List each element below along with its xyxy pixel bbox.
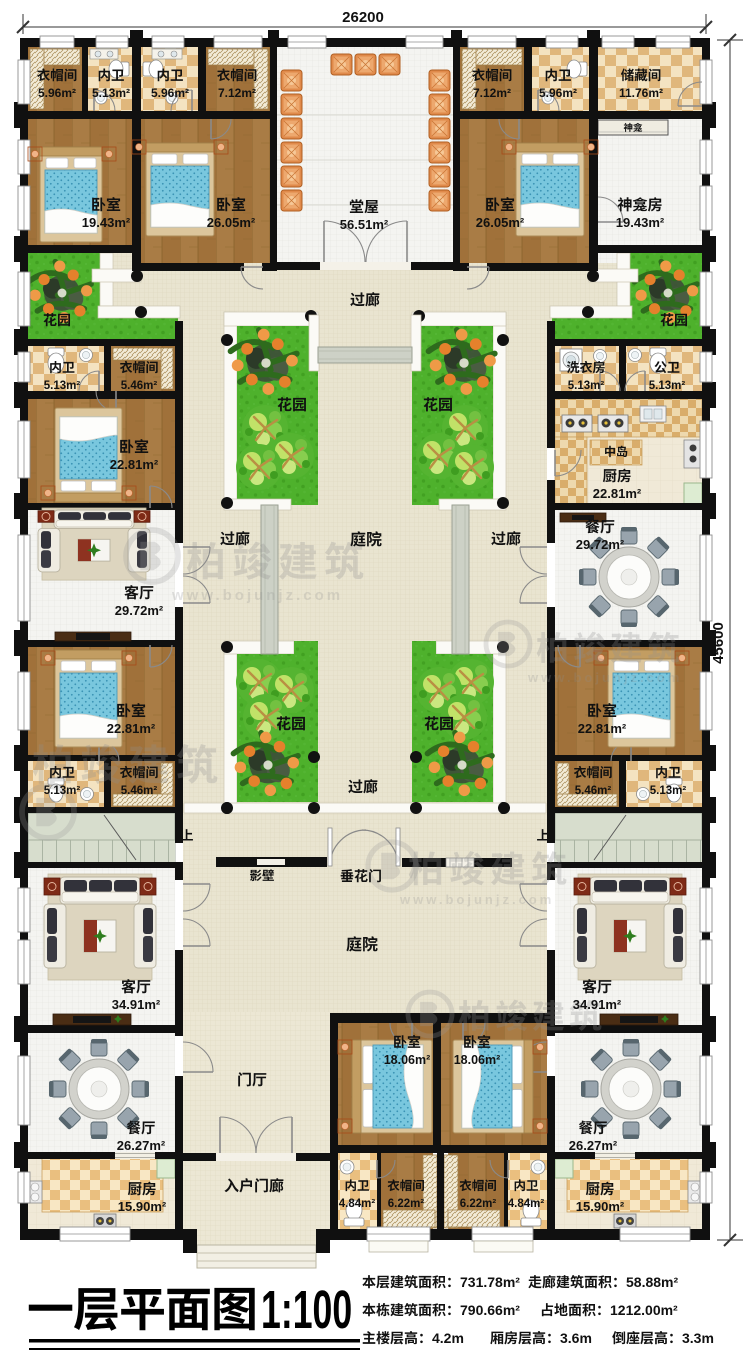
svg-text:主楼层高：4.2m: 主楼层高：4.2m <box>362 1328 464 1348</box>
svg-text:客厅: 客厅 <box>124 582 154 603</box>
svg-text:厨房: 厨房 <box>128 1178 157 1199</box>
svg-text:一层平面图: 一层平面图 <box>27 1271 257 1340</box>
svg-text:5.13m²: 5.13m² <box>650 785 687 797</box>
svg-text:过廊: 过廊 <box>491 528 521 549</box>
svg-text:6.22m²: 6.22m² <box>460 1198 497 1210</box>
svg-text:衣帽间: 衣帽间 <box>387 1175 425 1194</box>
svg-text:本层建筑面积：731.78m²: 本层建筑面积：731.78m² <box>362 1272 520 1292</box>
svg-text:22.81m²: 22.81m² <box>593 486 642 501</box>
svg-text:7.12m²: 7.12m² <box>473 86 511 100</box>
svg-text:6.22m²: 6.22m² <box>388 1198 425 1210</box>
svg-text:中岛: 中岛 <box>604 443 628 460</box>
svg-text:5.13m²: 5.13m² <box>44 785 81 797</box>
svg-text:22.81m²: 22.81m² <box>110 457 159 472</box>
svg-text:上: 上 <box>536 825 549 844</box>
svg-text:厢房层高：3.6m: 厢房层高：3.6m <box>490 1328 592 1348</box>
svg-text:庭院: 庭院 <box>350 526 382 550</box>
svg-text:神龛: 神龛 <box>623 120 643 134</box>
svg-text:餐厅: 餐厅 <box>127 1117 156 1138</box>
svg-text:26.27m²: 26.27m² <box>117 1138 166 1153</box>
svg-text:26200: 26200 <box>342 9 384 26</box>
svg-text:衣帽间: 衣帽间 <box>217 64 258 84</box>
svg-text:公卫: 公卫 <box>654 357 680 376</box>
svg-text:内卫: 内卫 <box>344 1175 369 1194</box>
svg-text:卧室: 卧室 <box>119 436 149 457</box>
svg-text:影壁: 影壁 <box>249 865 275 884</box>
svg-text:45600: 45600 <box>710 622 727 664</box>
svg-text:入户门廊: 入户门廊 <box>224 1175 284 1196</box>
svg-text:衣帽间: 衣帽间 <box>119 762 158 781</box>
svg-text:花园: 花园 <box>424 713 454 734</box>
svg-text:5.13m²: 5.13m² <box>568 380 605 392</box>
svg-text:内卫: 内卫 <box>545 64 572 84</box>
svg-text:www.bojunjz.com: www.bojunjz.com <box>527 670 682 685</box>
svg-text:内卫: 内卫 <box>49 357 75 376</box>
svg-text:走廊建筑面积：58.88m²: 走廊建筑面积：58.88m² <box>528 1272 678 1292</box>
svg-text:5.13m²: 5.13m² <box>649 380 686 392</box>
svg-text:过廊: 过廊 <box>348 776 378 797</box>
svg-text:www.bojunjz.com: www.bojunjz.com <box>171 587 343 604</box>
svg-text:5.96m²: 5.96m² <box>38 86 76 100</box>
svg-text:19.43m²: 19.43m² <box>82 215 131 230</box>
svg-text:5.46m²: 5.46m² <box>121 785 158 797</box>
svg-text:5.13m²: 5.13m² <box>92 86 130 100</box>
svg-text:柏竣建筑: 柏竣建筑 <box>408 841 572 893</box>
svg-text:厨房: 厨房 <box>586 1178 615 1199</box>
svg-text:储藏间: 储藏间 <box>621 64 662 84</box>
svg-text:厨房: 厨房 <box>603 465 632 486</box>
svg-text:4.84m²: 4.84m² <box>339 1198 376 1210</box>
svg-text:26.27m²: 26.27m² <box>569 1138 618 1153</box>
svg-text:26.05m²: 26.05m² <box>207 215 256 230</box>
svg-text:占地面积：1212.00m²: 占地面积：1212.00m² <box>540 1300 678 1320</box>
svg-text:26.05m²: 26.05m² <box>476 215 525 230</box>
svg-text:5.46m²: 5.46m² <box>575 785 612 797</box>
svg-text:5.13m²: 5.13m² <box>44 380 81 392</box>
svg-text:11.76m²: 11.76m² <box>619 86 663 100</box>
svg-text:卧室: 卧室 <box>393 1032 421 1052</box>
svg-text:柏竣建筑: 柏竣建筑 <box>536 622 684 670</box>
svg-text:34.91m²: 34.91m² <box>112 997 161 1012</box>
svg-text:19.43m²: 19.43m² <box>616 215 665 230</box>
svg-text:内卫: 内卫 <box>157 64 184 84</box>
svg-text:5.46m²: 5.46m² <box>121 380 158 392</box>
svg-text:内卫: 内卫 <box>513 1175 538 1194</box>
svg-text:卧室: 卧室 <box>216 194 246 215</box>
svg-text:花园: 花园 <box>423 394 453 415</box>
svg-text:过廊: 过廊 <box>220 528 250 549</box>
svg-text:1:100: 1:100 <box>261 1280 352 1340</box>
svg-text:本栋建筑面积：790.66m²: 本栋建筑面积：790.66m² <box>362 1300 520 1320</box>
svg-text:客厅: 客厅 <box>582 976 612 997</box>
svg-text:4.84m²: 4.84m² <box>508 1198 545 1210</box>
svg-text:29.72m²: 29.72m² <box>115 603 164 618</box>
svg-text:15.90m²: 15.90m² <box>576 1199 625 1214</box>
svg-text:上: 上 <box>180 825 193 844</box>
svg-text:花园: 花园 <box>43 310 71 330</box>
svg-text:衣帽间: 衣帽间 <box>459 1175 497 1194</box>
svg-text:卧室: 卧室 <box>116 700 146 721</box>
svg-text:卧室: 卧室 <box>485 194 515 215</box>
svg-text:倒座层高：3.3m: 倒座层高：3.3m <box>612 1328 714 1348</box>
svg-text:衣帽间: 衣帽间 <box>37 64 78 84</box>
svg-text:花园: 花园 <box>277 394 307 415</box>
svg-text:56.51m²: 56.51m² <box>340 217 389 232</box>
svg-text:衣帽间: 衣帽间 <box>472 64 513 84</box>
svg-text:堂屋: 堂屋 <box>349 196 379 217</box>
svg-text:过廊: 过廊 <box>350 289 380 310</box>
svg-text:22.81m²: 22.81m² <box>578 721 627 736</box>
svg-text:18.06m²: 18.06m² <box>454 1053 501 1067</box>
svg-text:内卫: 内卫 <box>655 762 681 781</box>
svg-text:卧室: 卧室 <box>587 700 617 721</box>
svg-text:衣帽间: 衣帽间 <box>119 357 158 376</box>
svg-text:卧室: 卧室 <box>91 194 121 215</box>
svg-text:垂花门: 垂花门 <box>340 866 382 886</box>
svg-text:花园: 花园 <box>660 310 688 330</box>
svg-text:餐厅: 餐厅 <box>579 1117 608 1138</box>
svg-text:衣帽间: 衣帽间 <box>573 762 612 781</box>
svg-text:神龛房: 神龛房 <box>617 194 662 215</box>
svg-text:29.72m²: 29.72m² <box>576 537 625 552</box>
svg-text:www.bojunjz.com: www.bojunjz.com <box>399 892 554 907</box>
svg-text:门厅: 门厅 <box>237 1069 267 1090</box>
svg-text:5.96m²: 5.96m² <box>151 86 189 100</box>
svg-text:柏竣建筑: 柏竣建筑 <box>186 530 370 588</box>
svg-text:7.12m²: 7.12m² <box>218 86 256 100</box>
svg-text:客厅: 客厅 <box>121 976 151 997</box>
svg-text:卧室: 卧室 <box>463 1032 491 1052</box>
svg-text:15.90m²: 15.90m² <box>118 1199 167 1214</box>
svg-text:18.06m²: 18.06m² <box>384 1053 431 1067</box>
svg-text:22.81m²: 22.81m² <box>107 721 156 736</box>
svg-text:内卫: 内卫 <box>98 64 125 84</box>
svg-text:花园: 花园 <box>276 713 306 734</box>
svg-text:餐厅: 餐厅 <box>585 516 615 537</box>
svg-text:庭院: 庭院 <box>346 931 378 955</box>
svg-text:内卫: 内卫 <box>49 762 75 781</box>
svg-text:34.91m²: 34.91m² <box>573 997 622 1012</box>
svg-text:洗衣房: 洗衣房 <box>566 357 605 376</box>
svg-text:5.96m²: 5.96m² <box>539 86 577 100</box>
